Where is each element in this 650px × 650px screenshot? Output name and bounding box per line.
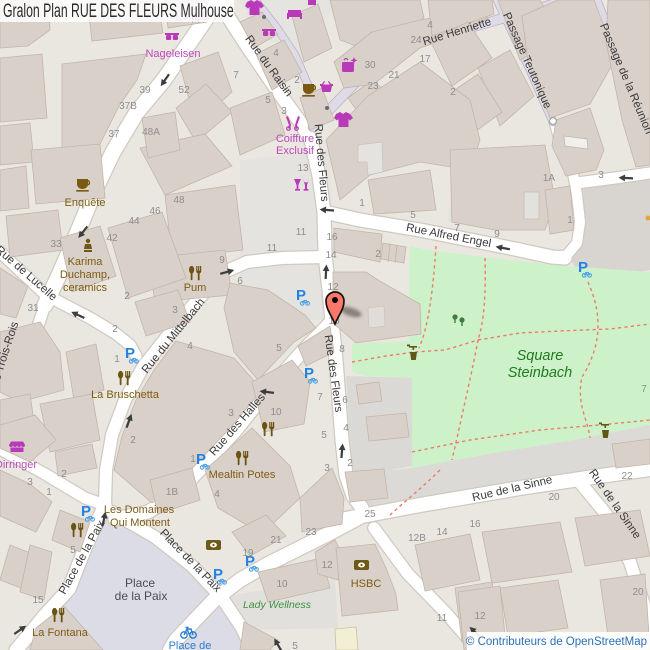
svg-text:37: 37: [108, 129, 120, 140]
svg-text:42: 42: [106, 233, 118, 244]
svg-text:7: 7: [233, 70, 239, 81]
svg-text:6: 6: [342, 395, 348, 406]
svg-text:11: 11: [296, 227, 307, 238]
svg-text:7: 7: [454, 223, 460, 234]
svg-text:9: 9: [219, 255, 225, 266]
svg-text:Dirringer: Dirringer: [0, 459, 37, 471]
svg-text:2: 2: [347, 458, 353, 469]
svg-text:Karima: Karima: [68, 256, 104, 268]
svg-text:48: 48: [173, 195, 185, 206]
svg-text:13: 13: [297, 163, 309, 174]
svg-text:20: 20: [632, 587, 644, 598]
svg-text:Place de: Place de: [169, 640, 212, 650]
svg-text:4: 4: [273, 48, 279, 59]
svg-text:2: 2: [124, 291, 130, 302]
svg-text:2: 2: [450, 87, 456, 98]
svg-text:21: 21: [388, 70, 400, 81]
svg-text:Enquête: Enquête: [65, 197, 106, 209]
svg-text:20: 20: [548, 492, 560, 503]
svg-text:Gralon Plan RUE DES FLEURS Mul: Gralon Plan RUE DES FLEURS Mulhouse: [3, 2, 234, 22]
svg-text:La Bruschetta: La Bruschetta: [91, 389, 160, 401]
svg-text:La Fontana: La Fontana: [32, 627, 89, 639]
svg-text:31: 31: [27, 303, 39, 314]
svg-text:5: 5: [70, 545, 76, 556]
svg-text:5: 5: [265, 95, 271, 106]
svg-text:6: 6: [237, 276, 243, 287]
svg-text:16: 16: [326, 232, 338, 243]
svg-text:Place: Place: [125, 576, 155, 590]
svg-text:25: 25: [364, 509, 376, 520]
svg-text:1: 1: [114, 354, 120, 365]
svg-text:19: 19: [242, 548, 254, 559]
svg-text:Mealtin Potes: Mealtin Potes: [209, 469, 276, 481]
svg-text:4: 4: [427, 20, 433, 31]
svg-text:14: 14: [436, 527, 448, 538]
svg-text:11: 11: [437, 613, 448, 624]
svg-text:5: 5: [292, 641, 298, 650]
svg-text:4: 4: [343, 423, 349, 434]
svg-text:3: 3: [172, 305, 178, 316]
svg-text:Lady Wellness: Lady Wellness: [243, 599, 312, 611]
svg-text:© Contributeurs de OpenStreetM: © Contributeurs de OpenStreetMap: [466, 636, 647, 648]
svg-text:ceramics: ceramics: [63, 282, 108, 294]
svg-text:17: 17: [419, 54, 431, 65]
svg-text:12: 12: [321, 560, 333, 571]
svg-text:Square: Square: [517, 348, 564, 364]
svg-text:1: 1: [46, 487, 52, 498]
svg-text:23: 23: [367, 81, 379, 92]
svg-text:5: 5: [410, 210, 416, 221]
svg-text:Exclusif: Exclusif: [276, 145, 315, 157]
svg-text:23: 23: [305, 527, 317, 538]
svg-text:Steinbach: Steinbach: [508, 365, 573, 381]
svg-text:1A: 1A: [543, 173, 556, 184]
svg-text:Qui Montent: Qui Montent: [110, 517, 170, 529]
svg-text:48A: 48A: [142, 127, 160, 138]
svg-text:37B: 37B: [119, 101, 137, 112]
svg-text:15: 15: [32, 595, 44, 606]
svg-text:5: 5: [276, 343, 282, 354]
svg-text:33: 33: [50, 239, 62, 250]
svg-text:10: 10: [276, 579, 288, 590]
svg-text:3: 3: [281, 106, 287, 117]
svg-text:HSBC: HSBC: [351, 578, 382, 590]
svg-text:30: 30: [364, 60, 376, 71]
svg-text:Coiffure: Coiffure: [276, 133, 314, 145]
svg-text:3: 3: [598, 170, 604, 181]
svg-text:Nageleisen: Nageleisen: [145, 48, 200, 60]
svg-text:5: 5: [321, 430, 327, 441]
svg-text:21: 21: [270, 535, 282, 546]
svg-text:Pum: Pum: [184, 282, 207, 294]
svg-text:2: 2: [112, 324, 118, 335]
svg-text:12B: 12B: [408, 533, 426, 544]
svg-text:14: 14: [325, 250, 337, 261]
svg-text:7: 7: [317, 392, 323, 403]
svg-text:8: 8: [339, 344, 345, 355]
svg-text:22: 22: [621, 471, 633, 482]
svg-text:2: 2: [130, 435, 136, 446]
svg-text:1B: 1B: [166, 487, 179, 498]
svg-text:1: 1: [359, 198, 365, 209]
svg-text:4: 4: [214, 489, 220, 500]
svg-text:24: 24: [410, 35, 422, 46]
svg-text:39: 39: [139, 85, 151, 96]
svg-text:1: 1: [567, 215, 573, 226]
svg-text:Les Domaines: Les Domaines: [104, 504, 175, 516]
svg-text:12: 12: [474, 611, 486, 622]
svg-text:2: 2: [294, 75, 300, 86]
svg-text:10: 10: [270, 407, 282, 418]
svg-text:Duchamp,: Duchamp,: [60, 269, 110, 281]
svg-text:11: 11: [267, 243, 278, 254]
svg-text:44: 44: [128, 216, 140, 227]
svg-text:de la Paix: de la Paix: [115, 589, 168, 603]
svg-text:9: 9: [494, 229, 500, 240]
svg-text:2: 2: [375, 249, 381, 260]
svg-text:16: 16: [469, 519, 481, 530]
svg-text:46: 46: [149, 206, 161, 217]
svg-text:7: 7: [641, 384, 647, 395]
svg-text:52: 52: [178, 85, 190, 96]
svg-text:4: 4: [187, 341, 193, 352]
svg-text:2: 2: [61, 469, 67, 480]
svg-text:3: 3: [27, 477, 33, 488]
svg-text:1: 1: [190, 454, 196, 465]
svg-text:3: 3: [324, 463, 330, 474]
svg-text:3: 3: [228, 408, 234, 419]
